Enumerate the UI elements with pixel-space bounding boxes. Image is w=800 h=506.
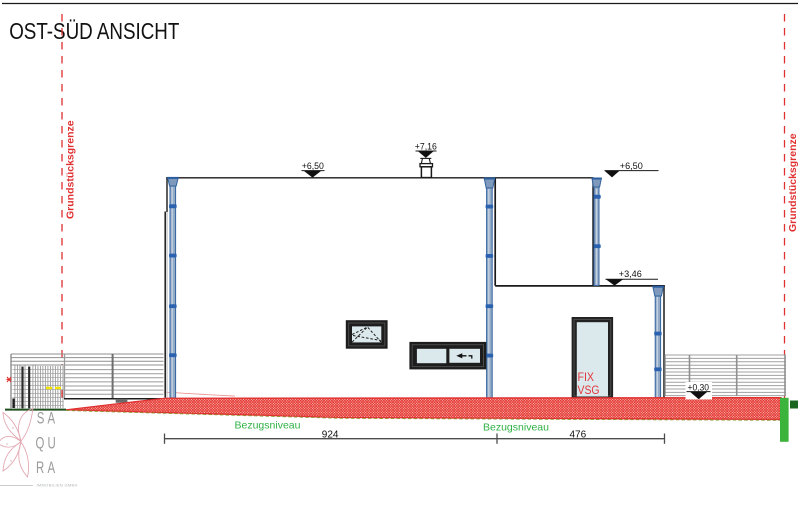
svg-text:924: 924 [322, 430, 339, 441]
svg-text:A: A [47, 459, 55, 478]
svg-text:Q: Q [35, 434, 44, 453]
svg-text:VSG: VSG [578, 385, 600, 397]
svg-text:U: U [47, 434, 55, 453]
svg-text:FIX: FIX [578, 372, 595, 384]
svg-text:Bezugsniveau: Bezugsniveau [483, 421, 549, 433]
svg-text:A: A [47, 409, 55, 428]
svg-text:S: S [37, 409, 45, 428]
svg-text:476: 476 [570, 430, 587, 441]
svg-text:+6,50: +6,50 [620, 161, 643, 171]
svg-text:+7,16: +7,16 [415, 141, 437, 151]
svg-text:IMMOBILIEN GMBH: IMMOBILIEN GMBH [37, 483, 78, 488]
svg-text:+6,50: +6,50 [302, 161, 324, 171]
svg-text:Grundstücksgrenze: Grundstücksgrenze [65, 120, 77, 219]
svg-text:Grundstücksgrenze: Grundstücksgrenze [787, 133, 799, 232]
svg-text:+0,30: +0,30 [688, 382, 710, 392]
svg-text:OST-SÜD ANSICHT: OST-SÜD ANSICHT [9, 18, 179, 45]
svg-text:R: R [36, 459, 44, 478]
svg-text:Bezugsniveau: Bezugsniveau [235, 420, 301, 432]
svg-text:+3,46: +3,46 [619, 269, 642, 279]
